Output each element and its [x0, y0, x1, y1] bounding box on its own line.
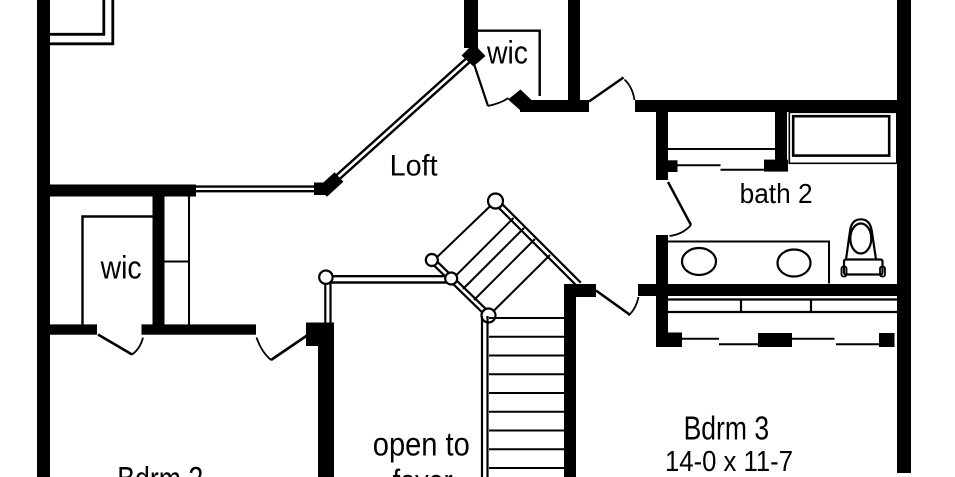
- svg-text:Bdrm 3: Bdrm 3: [684, 410, 770, 447]
- svg-text:14-0 x 11-7: 14-0 x 11-7: [665, 446, 793, 477]
- svg-text:Loft: Loft: [390, 149, 439, 182]
- svg-text:open to: open to: [373, 427, 470, 464]
- svg-text:bath 2: bath 2: [740, 178, 813, 209]
- svg-text:foyer: foyer: [393, 464, 453, 477]
- svg-text:Bdrm 2: Bdrm 2: [117, 460, 203, 477]
- svg-text:wic: wic: [486, 35, 528, 71]
- svg-text:wic: wic: [100, 249, 142, 285]
